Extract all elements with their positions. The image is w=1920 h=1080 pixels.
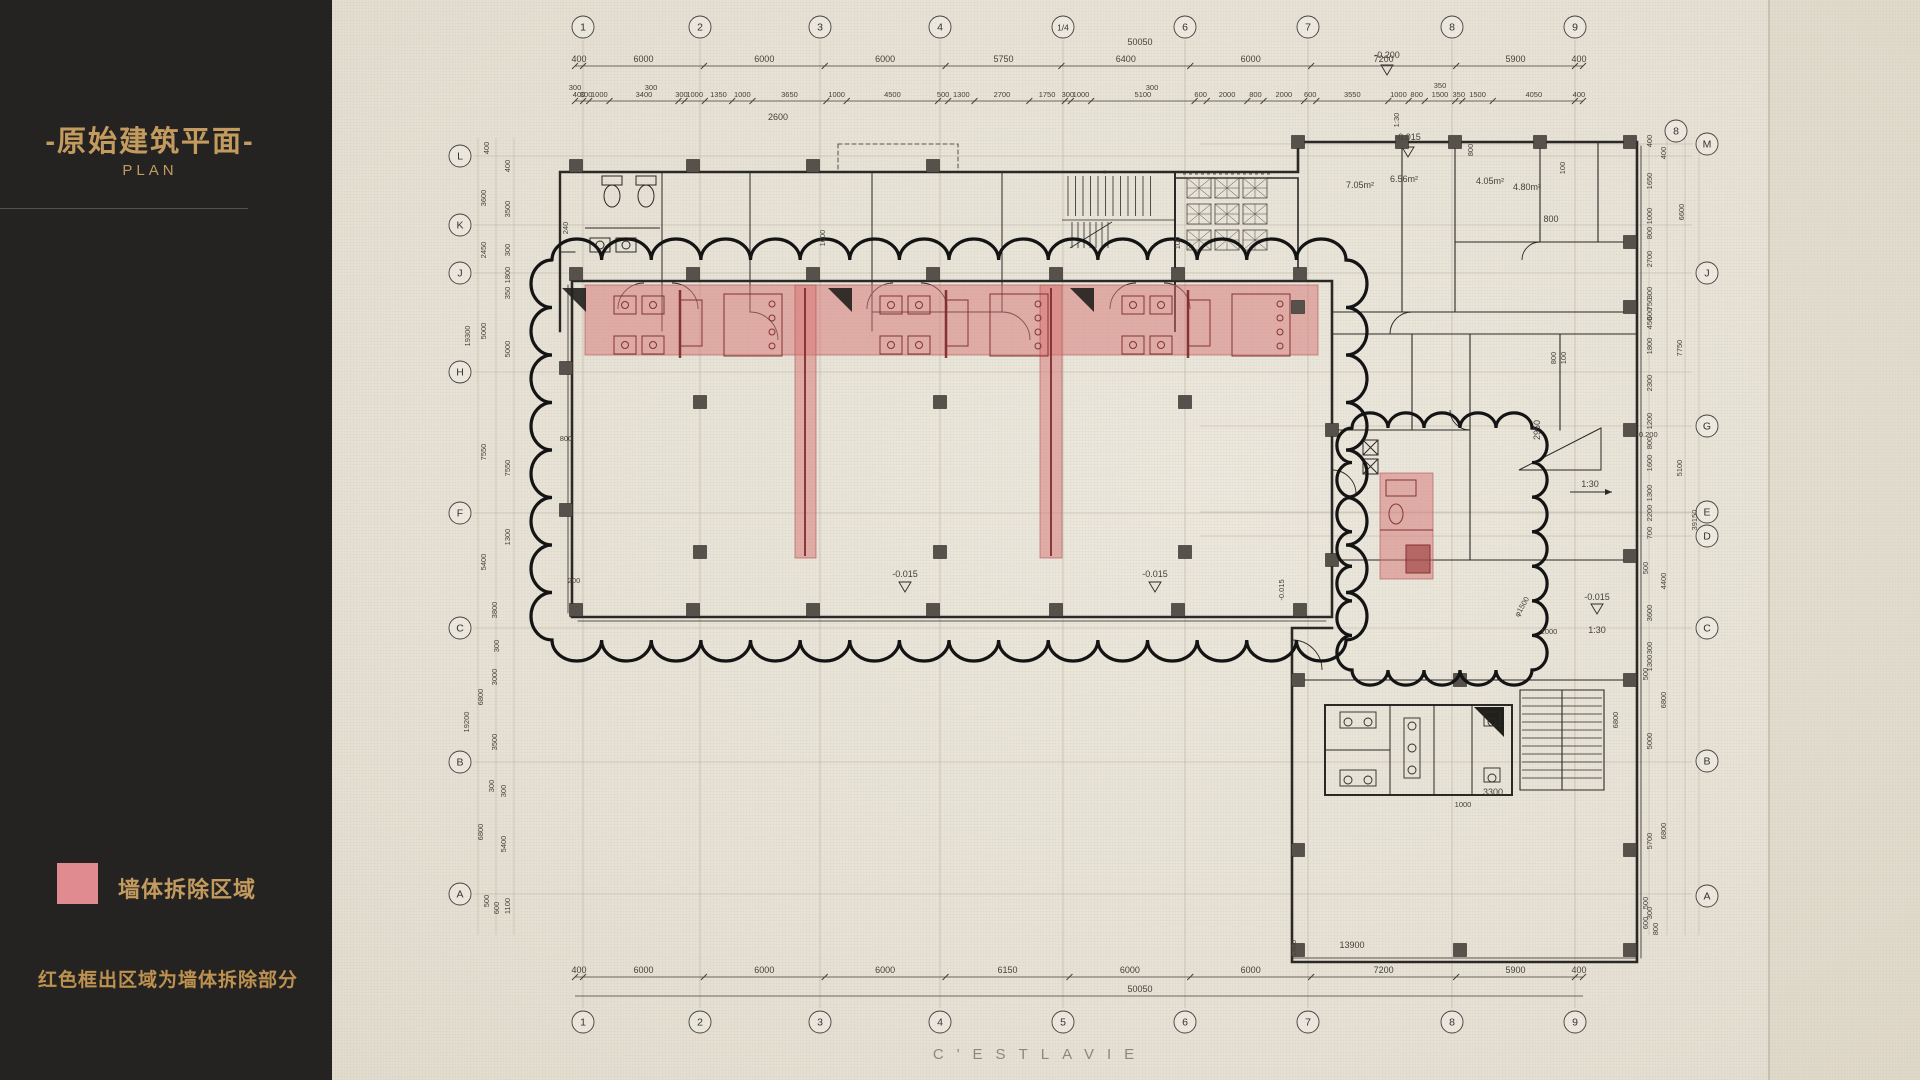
grid-bubble-label: K [456,220,463,232]
grid-bubble-label: 7 [1305,1017,1311,1029]
dimension-label: 1500 [1432,90,1449,99]
annotation-label: -0.015 [1584,592,1610,602]
structural-column [694,546,707,559]
annotation-label: 100 [1558,162,1567,175]
dimension-label: 1000 [1645,208,1654,225]
dimension-label: 3000 [490,669,499,686]
dimension-label: 800 [1651,923,1660,936]
dimension-label: 6800 [476,689,485,706]
annotation-label: 4.80m² [1513,182,1541,192]
structural-column [927,160,940,173]
dimension-label: 5400 [499,836,508,853]
grid-bubble-label: 1 [580,1017,586,1029]
structural-column [1624,136,1637,149]
structural-column [1172,268,1185,281]
locker-hatch [1215,204,1239,224]
annotation-label: 6.56m² [1390,174,1418,184]
grid-bubble-label: 9 [1572,1017,1578,1029]
dimension-label: 600 [1194,90,1207,99]
dimension-label: 6000 [875,54,895,64]
dimension-label: 4050 [1525,90,1542,99]
grid-bubble-label: 6 [1182,1017,1188,1029]
dimension-label: 6000 [754,965,774,975]
annotation-label: 300 [569,83,582,92]
grid-bubble-label: 8 [1673,126,1679,138]
structural-column [560,504,573,517]
grid-bubble-label: 4 [937,1017,943,1029]
annotation-label: φ1500 [1513,595,1532,618]
annotation-label: 240 [561,222,570,235]
structural-column [1292,301,1305,314]
annotation-label: 1400 [1289,940,1298,957]
locker-hatch [1215,178,1239,198]
dimension-label: 1100 [503,898,512,914]
floor-plan: 4006000600060005750640060007200590040040… [0,0,1920,1080]
grid-bubble-label: B [1703,756,1710,768]
dimension-label: 2700 [1645,251,1654,268]
dimension-label: 300 [499,785,508,798]
dimension-label: 6000 [633,965,653,975]
structural-column [934,546,947,559]
dimension-label: 3800 [490,602,499,619]
dimension-label: 6600 [1677,204,1686,221]
structural-column [1326,424,1339,437]
dimension-label: 6800 [1659,823,1668,840]
annotation-label: 800 [1543,214,1558,224]
dimension-label: 6800 [1659,692,1668,709]
dimension-label: 6150 [997,965,1017,975]
dimension-label: 5000 [1645,733,1654,750]
revision-cloud [1337,413,1547,685]
fixture [1406,545,1430,573]
dimension-label: 400 [1571,965,1586,975]
structural-column [570,604,583,617]
dimension-label: 5400 [479,554,488,571]
dimension-label: 1800 [503,267,512,284]
dimension-label: 7550 [503,460,512,477]
dimension-label: 500 [482,895,491,908]
annotation-label: 13900 [1339,940,1364,950]
structural-column [1624,236,1637,249]
dimension-label: 600 [1304,90,1317,99]
structural-column [570,160,583,173]
grid-bubble-label: 3 [817,22,823,34]
dimension-label: 1000 [734,90,751,99]
annotation-label: 350 [1434,81,1447,90]
grid-bubble-label: J [457,268,462,280]
dimension-label: 6800 [476,824,485,841]
grid-bubble-label: A [1703,891,1710,903]
dimension-label: 3650 [781,90,798,99]
locker-hatch [1187,178,1211,198]
total-dimension: 50050 [1127,984,1152,994]
structural-column [1172,604,1185,617]
dimension-label: 1600 [1645,455,1654,472]
grid-bubble-label: J [1704,268,1709,280]
dimension-label: 300 [503,244,512,257]
dimension-label: 1800 [1645,338,1654,355]
dimension-label: 1000 [591,90,608,99]
structural-column [687,268,700,281]
structural-column [1624,424,1637,437]
structural-column [1179,546,1192,559]
grid-bubble-label: 1/4 [1057,23,1069,33]
dimension-label: 6000 [1241,54,1261,64]
annotation-label: -0.015 [1142,569,1168,579]
grid-bubble-label: D [1703,531,1711,543]
dimension-label: 400 [1645,135,1654,148]
structural-column [1534,136,1547,149]
grid-bubble-label: G [1703,421,1711,433]
dimension-label: 6000 [1241,965,1261,975]
dimension-label: 400 [572,54,587,64]
structural-column [934,396,947,409]
dimension-label: 500 [1641,668,1650,681]
annotation-label: -0.200 [1374,50,1400,60]
dimension-label: 800 [1410,90,1423,99]
demolition-highlight [585,285,1318,355]
dimension-label: 300 [487,780,496,793]
dimension-label: 350 [503,287,512,300]
dimension-label: 300 [1645,287,1654,300]
annotation-label: 2600 [768,112,788,122]
dimension-label: 1200 [1645,413,1654,430]
dimension-label: 7750 [1675,340,1684,357]
dimension-label: 400 [482,142,491,155]
structural-column [807,160,820,173]
structural-column [927,268,940,281]
annotation-label: 1:30 [1588,625,1606,635]
structural-column [1050,268,1063,281]
dimension-label: 600 [1641,917,1650,930]
structural-column [807,604,820,617]
annotation-label: 1000 [818,230,827,247]
structural-column [1292,674,1305,687]
dimension-label: 1300 [503,529,512,546]
grid-bubble-label: 8 [1449,22,1455,34]
structural-column [570,268,583,281]
dimension-label: 1350 [710,90,727,99]
grid-bubble-label: 5 [1060,1017,1066,1029]
structural-column [1294,268,1307,281]
structural-column [1294,604,1307,617]
annotation-label: 4.05m² [1476,176,1504,186]
dimension-label: 2000 [1276,90,1293,99]
annotation-label: 1000 [1541,627,1558,636]
structural-column [694,396,707,409]
dimension-label: 19300 [463,326,472,347]
annotation-label: 100 [1173,237,1182,250]
structural-column [1292,136,1305,149]
annotation-label: 3300 [1483,787,1503,797]
dimension-label: 6000 [633,54,653,64]
structural-column [560,362,573,375]
annotation-label: 2950 [1532,420,1542,440]
grid-bubble-label: A [456,889,463,901]
grid-bubble-label: F [457,508,463,520]
dimension-label: 5000 [503,341,512,358]
grid-bubble-label: 3 [817,1017,823,1029]
structural-column [1449,136,1462,149]
shaft-triangle [562,288,586,312]
structural-column [687,604,700,617]
dimension-label: 7550 [479,444,488,461]
dimension-label: 5900 [1506,54,1526,64]
annotation-label: 1:30 [1392,113,1401,128]
dimension-label: 500 [937,90,950,99]
grid-bubble-label: C [456,623,464,635]
dimension-label: 300 [492,640,501,653]
dimension-label: 5100 [1675,460,1684,477]
dimension-label: 4500 [884,90,901,99]
dimension-label: 350 [1453,90,1466,99]
dimension-label: 1500 [1469,90,1486,99]
dimension-label: 6000 [1120,965,1140,975]
dimension-label: 2000 [1219,90,1236,99]
dimension-label: 1300 [953,90,970,99]
dimension-label: 6800 [1611,712,1620,729]
annotation-label: 800 [1549,352,1558,365]
annotation-label: 300 [1146,83,1159,92]
grid-bubble-label: 1 [580,22,586,34]
annotation-label: 800 [560,434,573,443]
structural-column [1624,944,1637,957]
annotation-label: 100 [1559,352,1568,365]
dimension-label: 5900 [1506,965,1526,975]
grid-bubble-label: H [456,367,464,379]
dimension-label: 2700 [994,90,1011,99]
dimension-label: 2200 [1645,505,1654,522]
structural-column [927,604,940,617]
dimension-label: 400 [1659,147,1668,160]
structural-column [1454,944,1467,957]
structural-column [1624,550,1637,563]
dimension-label: 4400 [1659,573,1668,590]
dimension-label: 700 [1645,527,1654,540]
dimension-label: 6000 [754,54,774,64]
annotation-label: 300 [645,83,658,92]
dimension-label: 450 [1645,317,1654,330]
grid-bubble-label: M [1703,139,1712,151]
grid-bubble-label: C [1703,623,1711,635]
dimension-label: 1000 [1390,90,1407,99]
dimension-label: 6000 [875,965,895,975]
dimension-label: 3500 [490,734,499,751]
structural-column [1292,844,1305,857]
dimension-label: 3600 [1645,605,1654,622]
annotation-label: 7.05m² [1346,180,1374,190]
grid-bubble-label: E [1703,507,1710,519]
dimension-label: 500 [1641,562,1650,575]
grid-bubble-label: 2 [697,22,703,34]
watermark: C'ESTLAVIE [830,1046,1250,1063]
dimension-label: 800 [1249,90,1262,99]
dimension-label: 19200 [462,712,471,733]
total-dimension: 50050 [1127,37,1152,47]
annotation-label: 800 [1466,144,1475,157]
dimension-label: 1000 [1073,90,1090,99]
building-walls [560,142,1641,962]
dimension-label: 5700 [1645,833,1654,850]
grid-bubble-label: 8 [1449,1017,1455,1029]
dimension-label: 3500 [503,201,512,218]
structural-column [1179,396,1192,409]
grid-bubble-label: 9 [1572,22,1578,34]
grid-bubble-label: 2 [697,1017,703,1029]
grid-bubble-label: 6 [1182,22,1188,34]
structural-column [687,160,700,173]
dimension-label: 7200 [1374,965,1394,975]
dimension-label: 5750 [993,54,1013,64]
dimension-label: 2450 [479,242,488,259]
annotation-label: 200 [568,576,581,585]
dimension-label: 300 [1645,642,1654,655]
dimension-label: 600 [492,902,501,915]
locker-hatch [1243,178,1267,198]
structural-column [1050,604,1063,617]
structural-column [1624,844,1637,857]
dimension-label: 6400 [1116,54,1136,64]
structural-column [807,268,820,281]
dimension-label: 400 [1571,54,1586,64]
dimension-label: 2300 [1645,375,1654,392]
dimension-label: 800 [1645,227,1654,240]
dimension-label: 1000 [828,90,845,99]
dimension-label: 1750 [1039,90,1056,99]
structural-column [1624,674,1637,687]
dimension-label: 1000 [686,90,703,99]
dimension-label: 400 [1573,90,1586,99]
annotation-label: 1000 [1455,800,1472,809]
locker-hatch [1187,204,1211,224]
dimension-label: 1300 [1645,485,1654,502]
annotation-label: -0.015 [892,569,918,579]
annotation-label: 1:30 [1581,479,1599,489]
dimension-label: 5000 [479,323,488,340]
grid-bubble-label: 4 [937,22,943,34]
grid-bubble-label: B [456,757,463,769]
dimension-label: 400 [503,160,512,173]
grid-bubble-label: L [457,151,463,163]
dimension-label: 1650 [1645,173,1654,190]
structural-column [1624,301,1637,314]
grid-bubble-label: 7 [1305,22,1311,34]
dimension-label: 3550 [1344,90,1361,99]
dimension-label: 400 [572,965,587,975]
annotation-label: -0.015 [1395,132,1421,142]
annotation-label: -0.015 [1277,579,1286,600]
locker-hatch [1243,204,1267,224]
annotation-label: -0.200 [1636,430,1657,439]
dimension-label: 3600 [479,190,488,207]
